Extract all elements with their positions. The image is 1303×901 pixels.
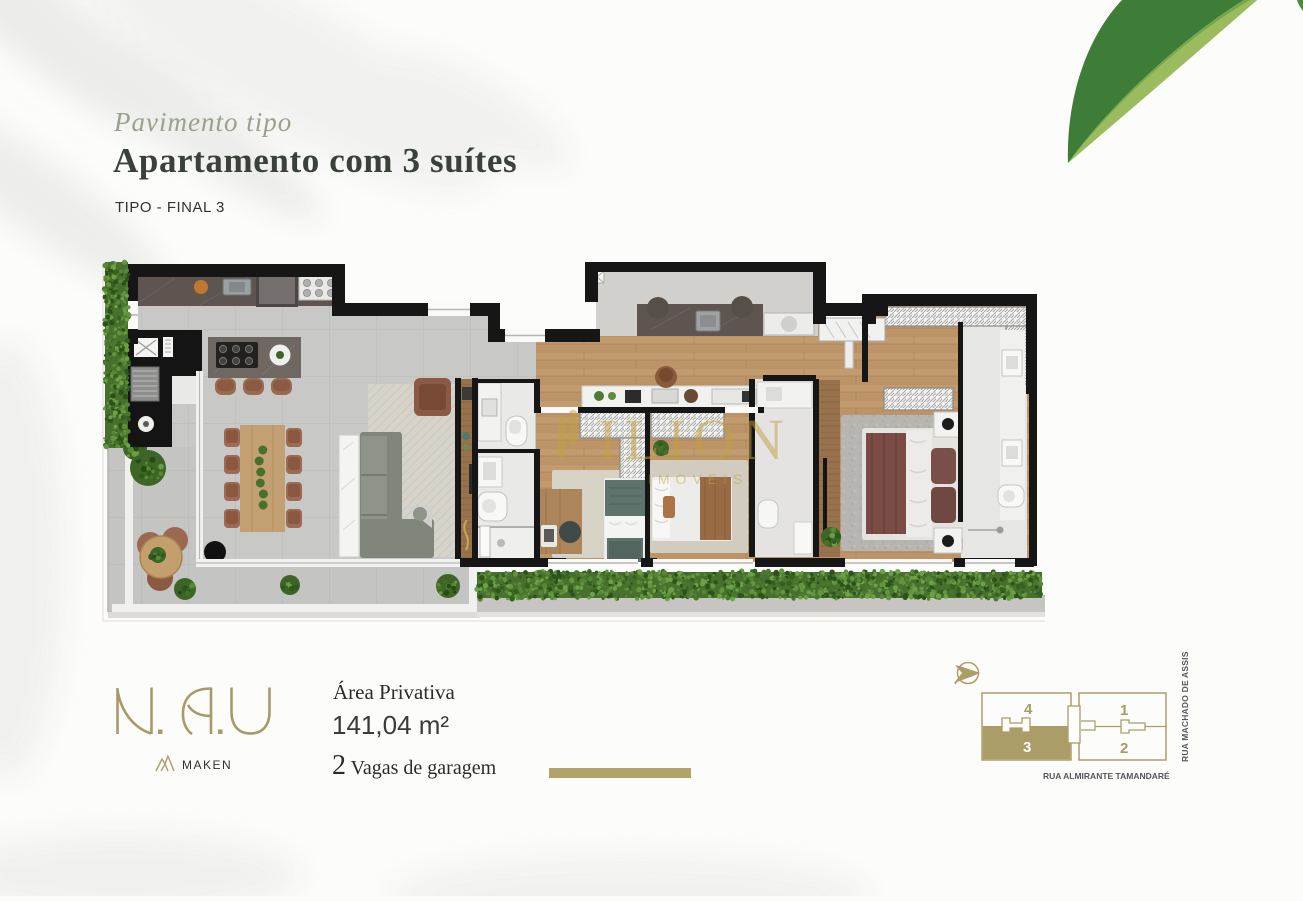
- svg-text:IMOVEIS: IMOVEIS: [648, 471, 748, 487]
- svg-text:ILION: ILION: [598, 407, 791, 472]
